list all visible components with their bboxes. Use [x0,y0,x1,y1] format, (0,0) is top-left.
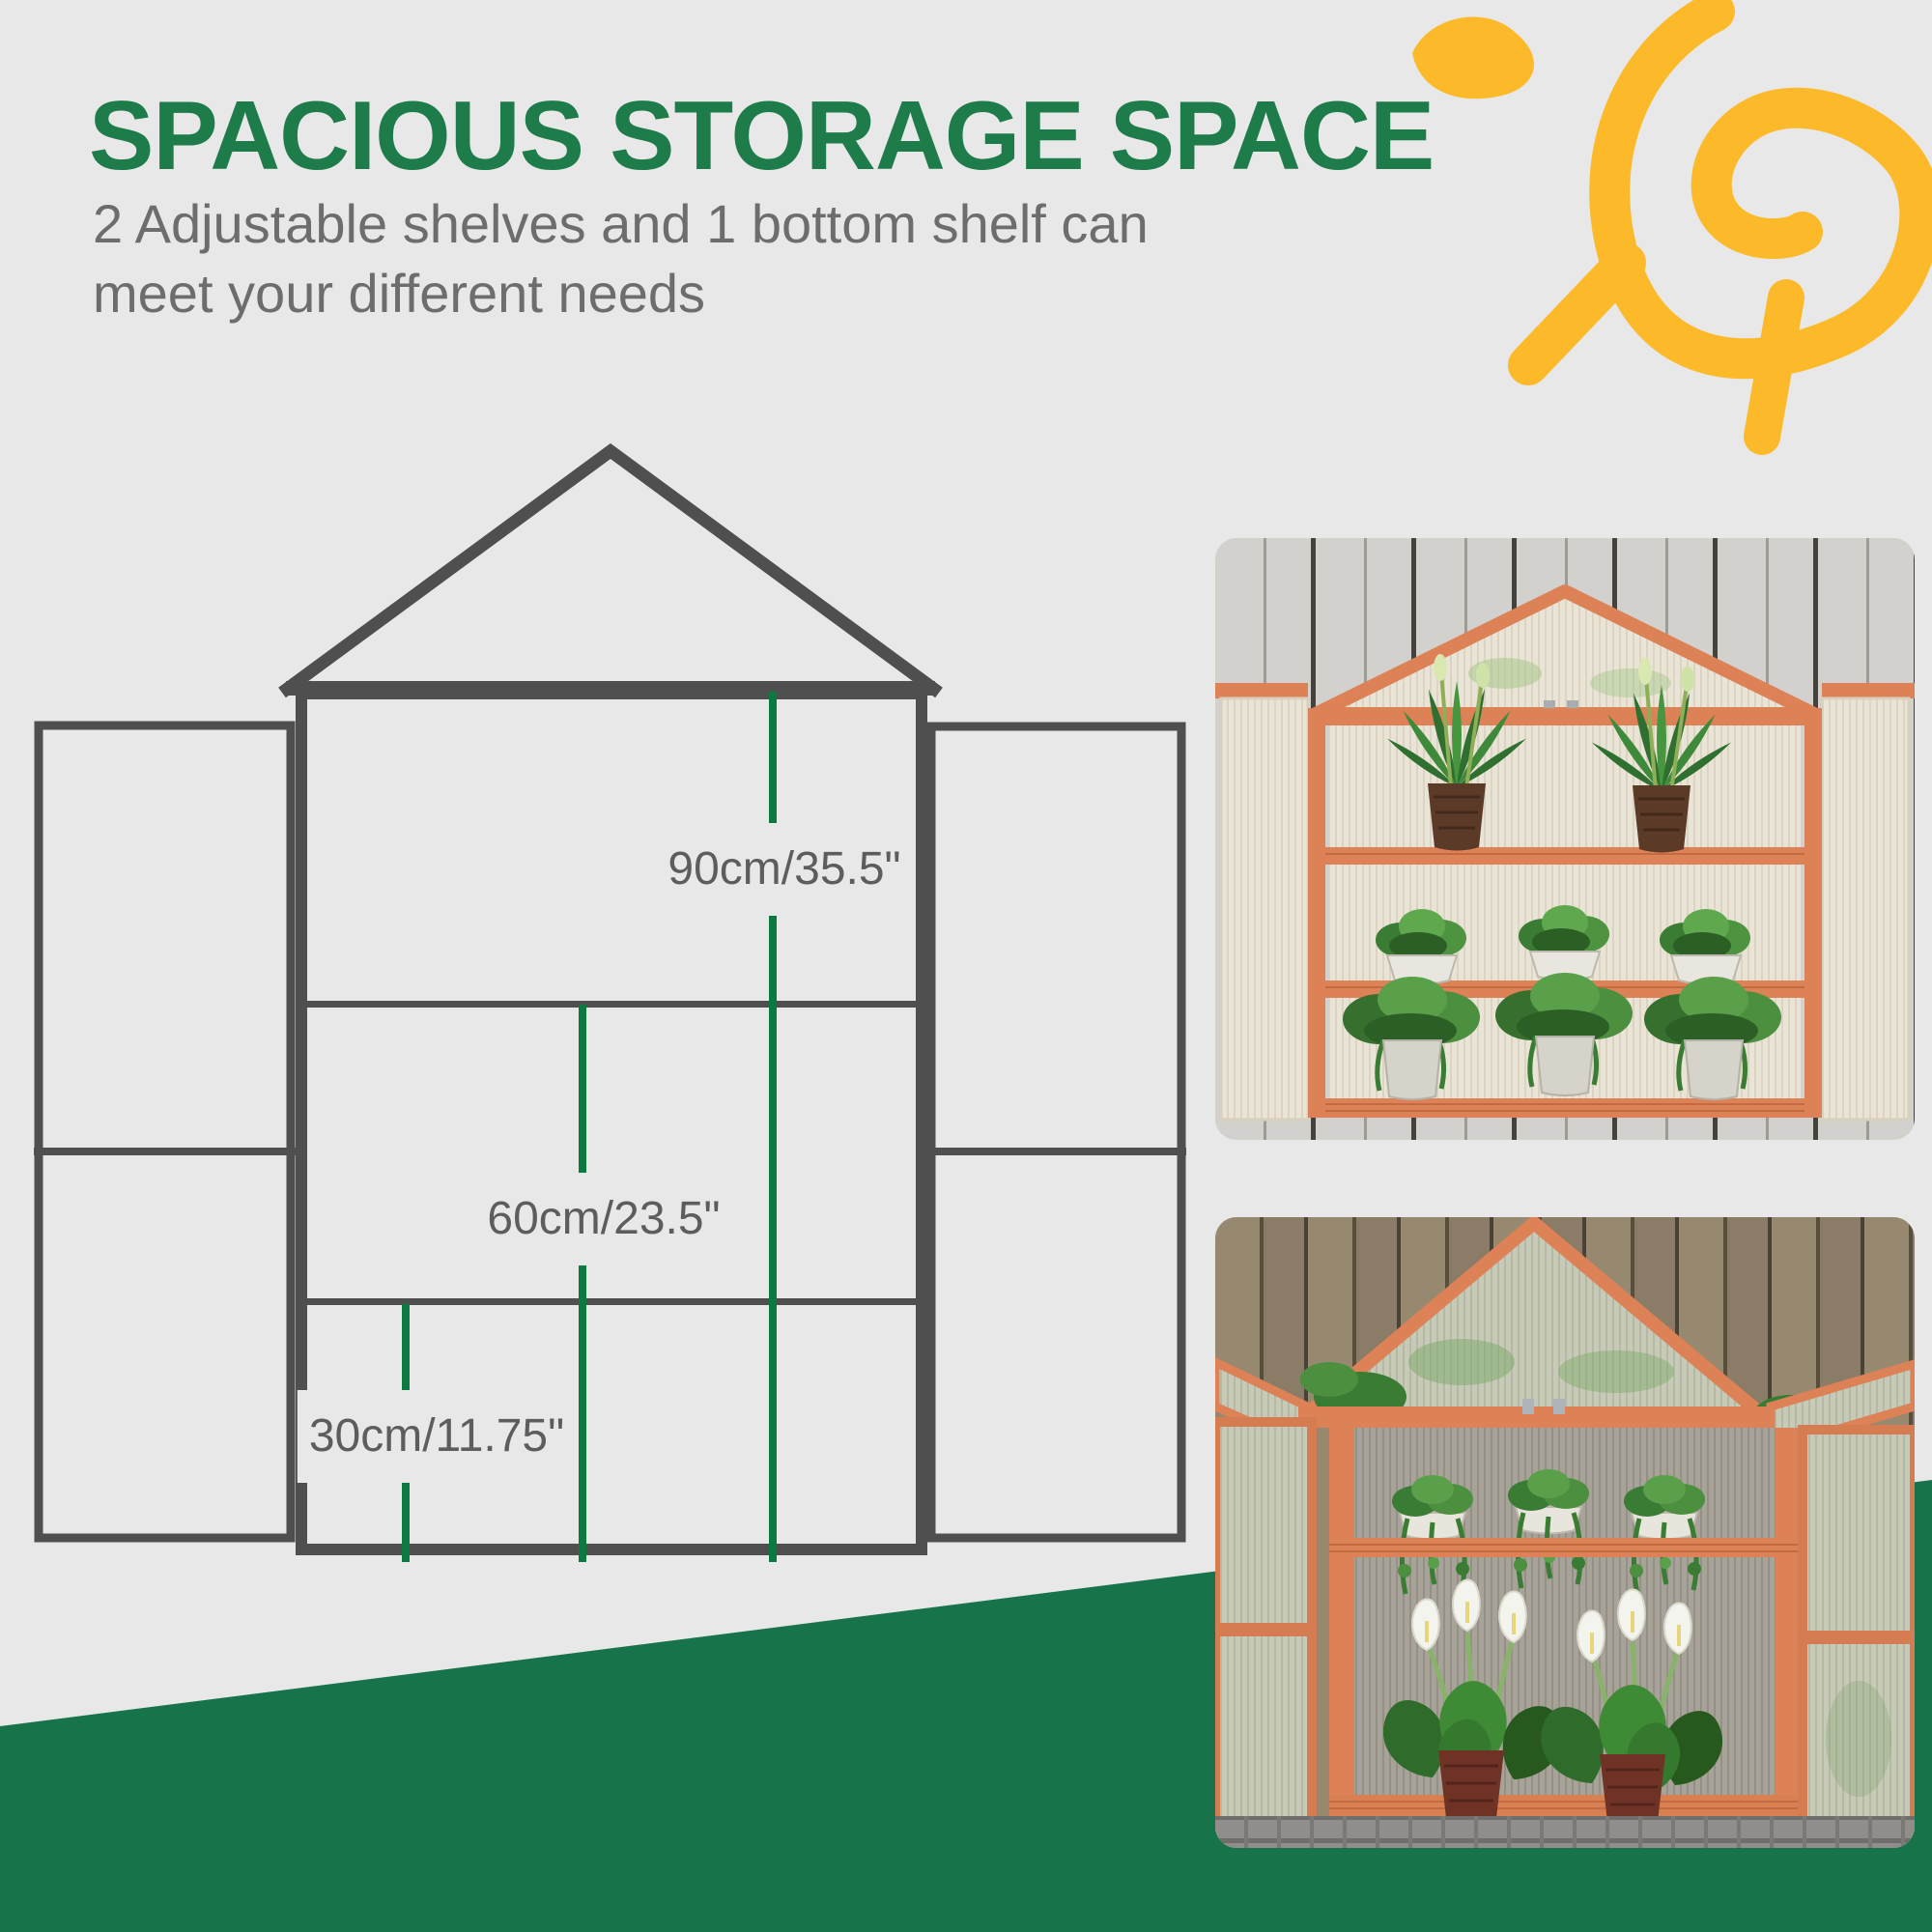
product-photo-shelves [1215,538,1915,1140]
page: SPACIOUS STORAGE SPACE 2 Adjustable shel… [0,0,1932,1932]
photo1-middle-shelf-plants [1376,905,1750,984]
subtitle-line-1: 2 Adjustable shelves and 1 bottom shelf … [93,193,1149,254]
diagram-shelf-lower [301,1298,922,1305]
sun-ray-left [1528,263,1626,365]
dimension-label-60cm: 60cm/23.5" [475,1173,731,1265]
diagram-left-door [39,725,291,1538]
diagram-left-door-divider [34,1148,296,1155]
page-subtitle: 2 Adjustable shelves and 1 bottom shelf … [93,189,1149,327]
photo-closeup-illustration [1215,1217,1915,1848]
dimension-label-30cm: 30cm/11.75" [298,1390,576,1483]
sun-ray-bottom [1762,298,1786,437]
photo-shelves-illustration [1215,538,1915,1140]
diagram-right-door [931,726,1181,1538]
photo2-deck [1215,1816,1915,1848]
dimension-line-60cm [579,1005,586,1562]
greenhouse-dimension-diagram [34,451,1186,1562]
sun-icon [1412,12,1919,437]
sun-spiral [1609,12,1919,358]
diagram-right-door-divider [927,1148,1186,1155]
product-photo-closeup [1215,1217,1915,1848]
dimension-label-90cm: 90cm/35.5" [656,823,912,916]
subtitle-line-2: meet your different needs [93,263,705,324]
photo1-bottom-shelf-plants [1343,973,1781,1099]
page-title: SPACIOUS STORAGE SPACE [89,81,1434,192]
diagram-roof [282,451,939,693]
diagram-shelf-upper [301,1001,922,1008]
